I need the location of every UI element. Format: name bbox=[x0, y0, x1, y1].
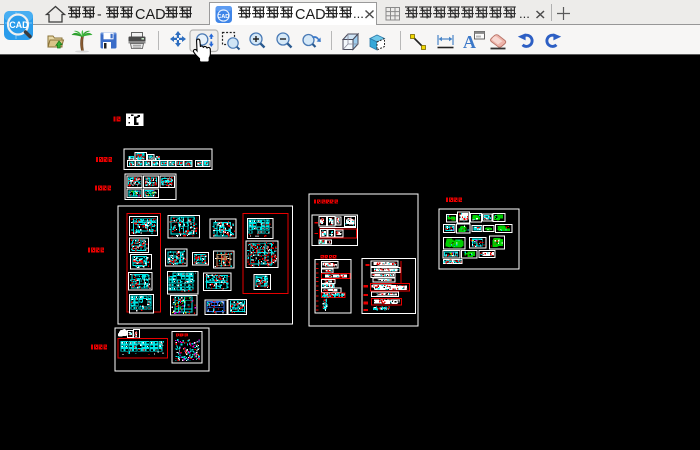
svg-text:A: A bbox=[463, 32, 476, 52]
svg-text:CAD: CAD bbox=[9, 20, 29, 30]
svg-text:CAD: CAD bbox=[135, 7, 166, 23]
svg-text:-: - bbox=[97, 6, 102, 22]
svg-text:...: ... bbox=[353, 6, 364, 21]
svg-text:CAD: CAD bbox=[295, 7, 326, 23]
svg-text:CAD: CAD bbox=[217, 14, 229, 20]
svg-text:...: ... bbox=[519, 6, 530, 21]
